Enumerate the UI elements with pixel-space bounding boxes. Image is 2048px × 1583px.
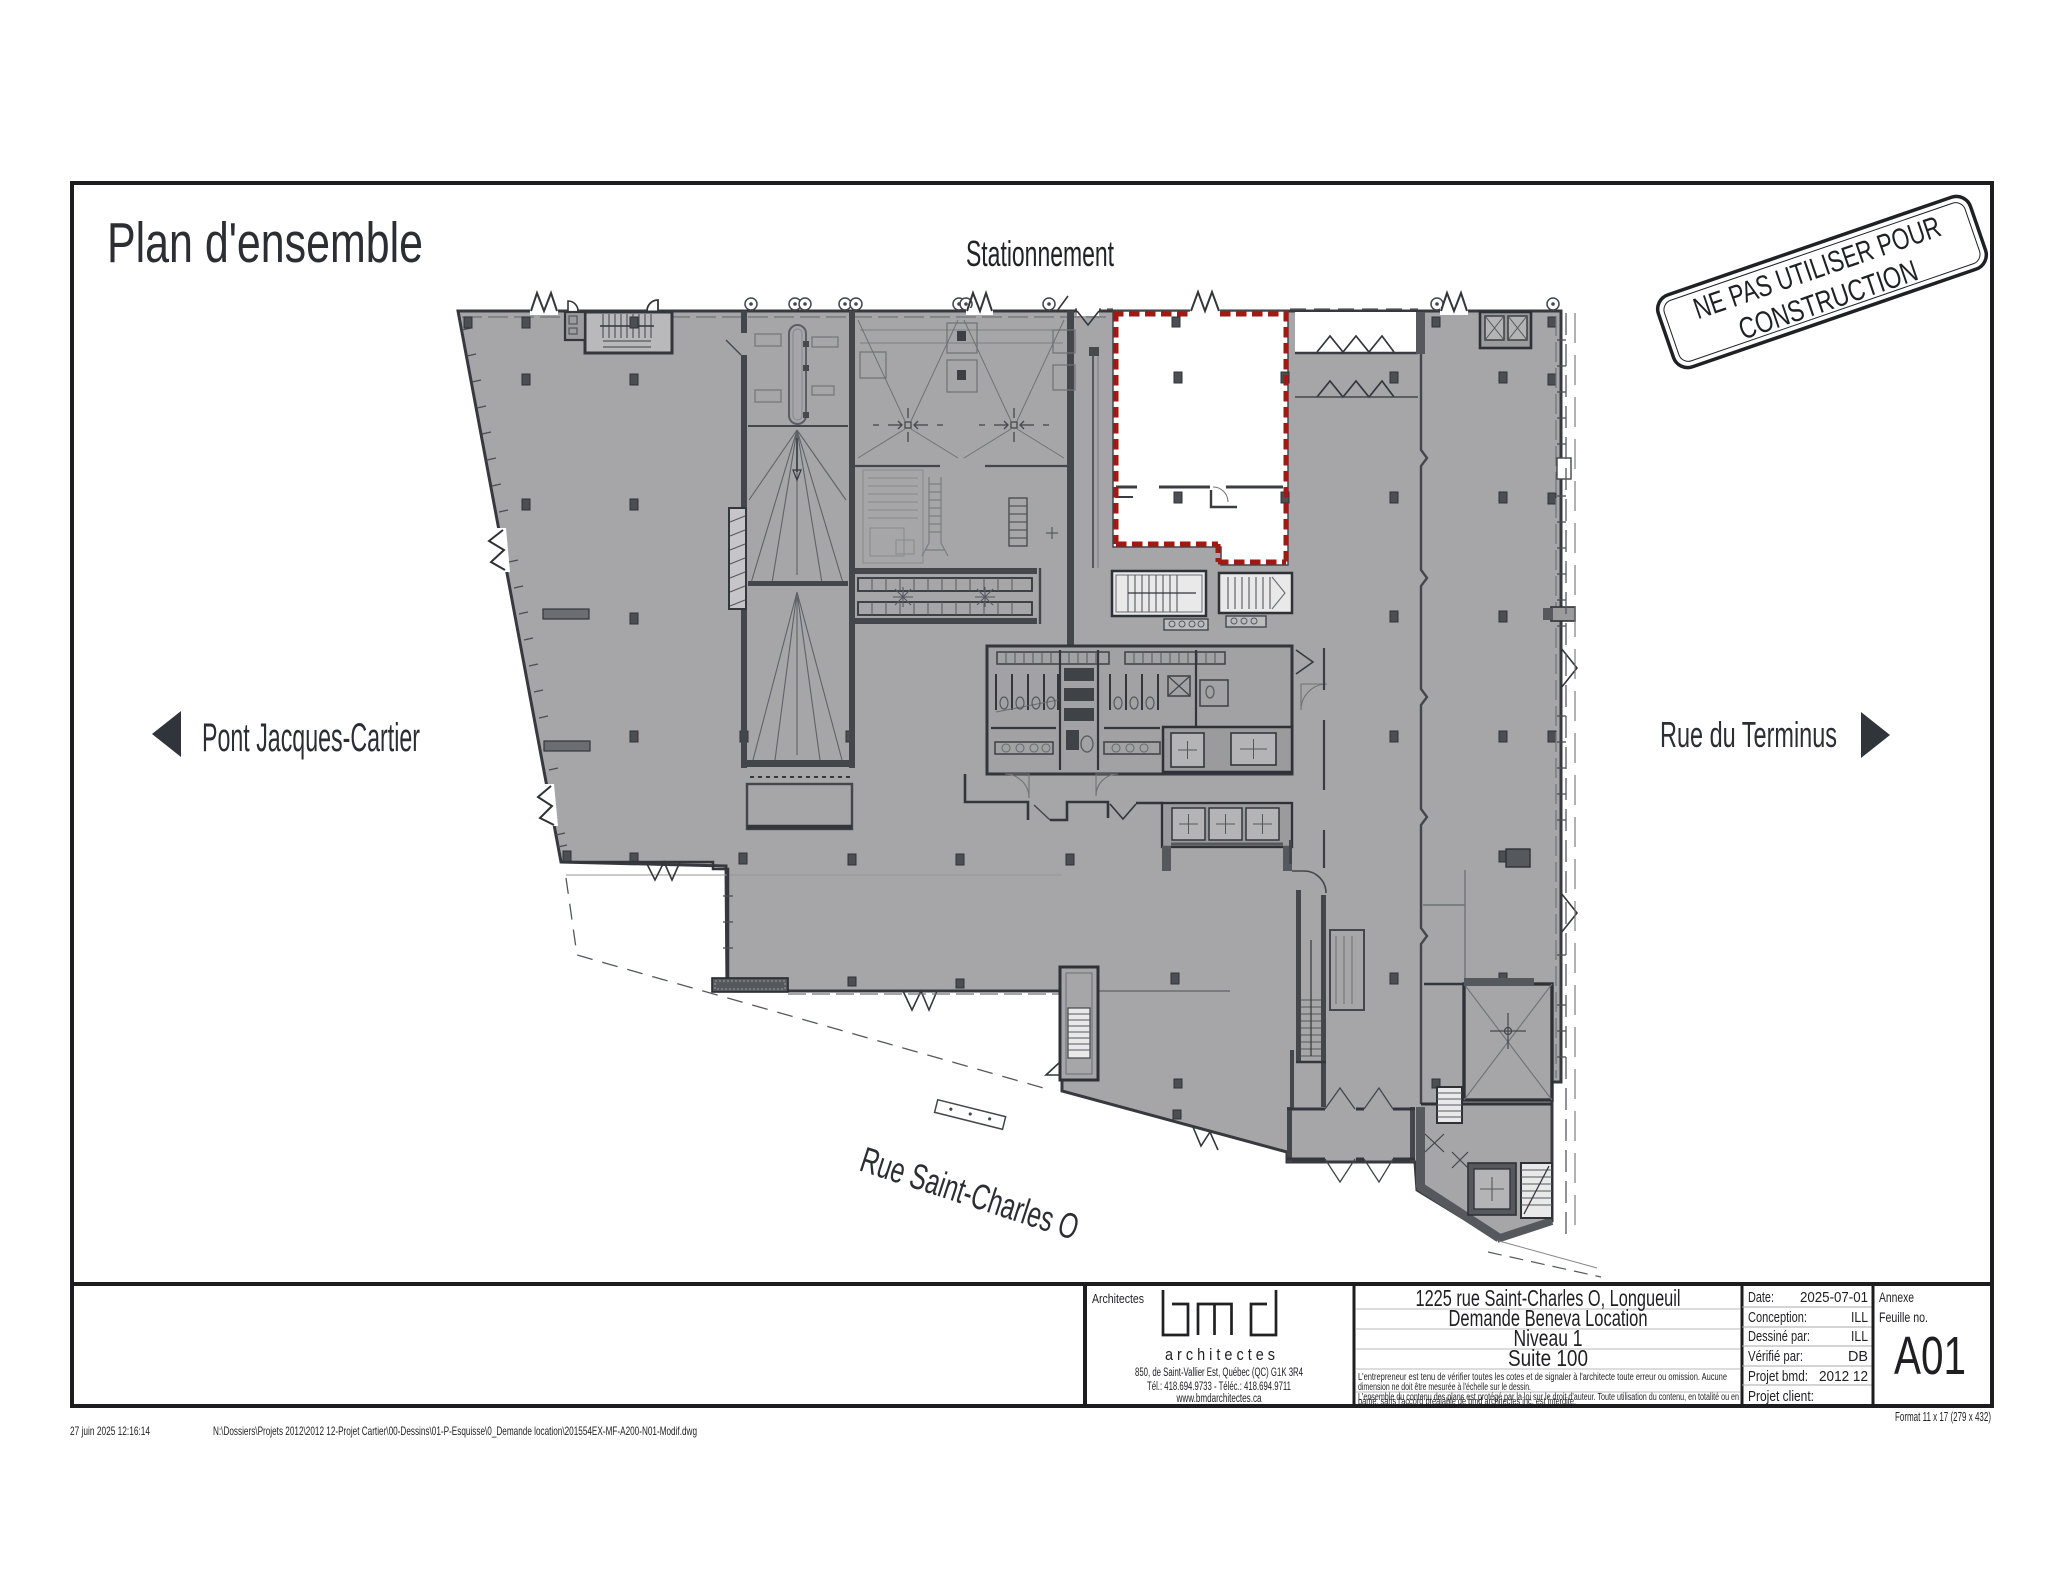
svg-text:2012 12: 2012 12 [1819, 1369, 1868, 1385]
svg-text:Rue du Terminus: Rue du Terminus [1660, 714, 1837, 755]
svg-text:Pont Jacques-Cartier: Pont Jacques-Cartier [202, 716, 420, 760]
svg-text:Format 11 x 17 (279 x 432): Format 11 x 17 (279 x 432) [1895, 1410, 1991, 1424]
svg-text:Stationnement: Stationnement [966, 233, 1114, 274]
svg-text:850, de Saint-Vallier Est, Qué: 850, de Saint-Vallier Est, Québec (QC) G… [1135, 1367, 1303, 1379]
svg-text:ILL: ILL [1851, 1310, 1868, 1326]
svg-text:www.bmdarchitectes.ca: www.bmdarchitectes.ca [1176, 1393, 1262, 1405]
svg-text:N:\Dossiers\Projets 2012\2012: N:\Dossiers\Projets 2012\2012 12-Projet … [213, 1424, 697, 1438]
svg-text:A01: A01 [1894, 1326, 1966, 1386]
svg-text:Tél.: 418.694.9733 - Téléc.: 4: Tél.: 418.694.9733 - Téléc.: 418.694.971… [1147, 1381, 1291, 1393]
svg-text:Vérifié par:: Vérifié par: [1748, 1349, 1803, 1365]
svg-text:Projet bmd:: Projet bmd: [1748, 1369, 1808, 1385]
svg-text:Dessiné par:: Dessiné par: [1748, 1329, 1810, 1345]
svg-text:a r c h i t e c t e s: a r c h i t e c t e s [1165, 1345, 1275, 1364]
svg-text:Conception:: Conception: [1748, 1310, 1807, 1326]
svg-text:Suite 100: Suite 100 [1508, 1345, 1588, 1371]
svg-text:Plan d'ensemble: Plan d'ensemble [107, 211, 423, 275]
svg-text:Projet client:: Projet client: [1748, 1389, 1814, 1405]
svg-text:27 juin 2025 12:16:14: 27 juin 2025 12:16:14 [70, 1424, 150, 1438]
svg-text:Feuille no.: Feuille no. [1879, 1309, 1928, 1325]
svg-text:Date:: Date: [1748, 1290, 1774, 1306]
svg-text:ILL: ILL [1851, 1329, 1868, 1345]
svg-text:Annexe: Annexe [1879, 1289, 1914, 1305]
svg-text:Architectes: Architectes [1092, 1291, 1144, 1306]
svg-text:partie, sans l'accord préalabl: partie, sans l'accord préalable de bmd a… [1358, 1397, 1576, 1408]
svg-text:DB: DB [1848, 1349, 1868, 1365]
svg-text:2025-07-01: 2025-07-01 [1800, 1290, 1868, 1306]
